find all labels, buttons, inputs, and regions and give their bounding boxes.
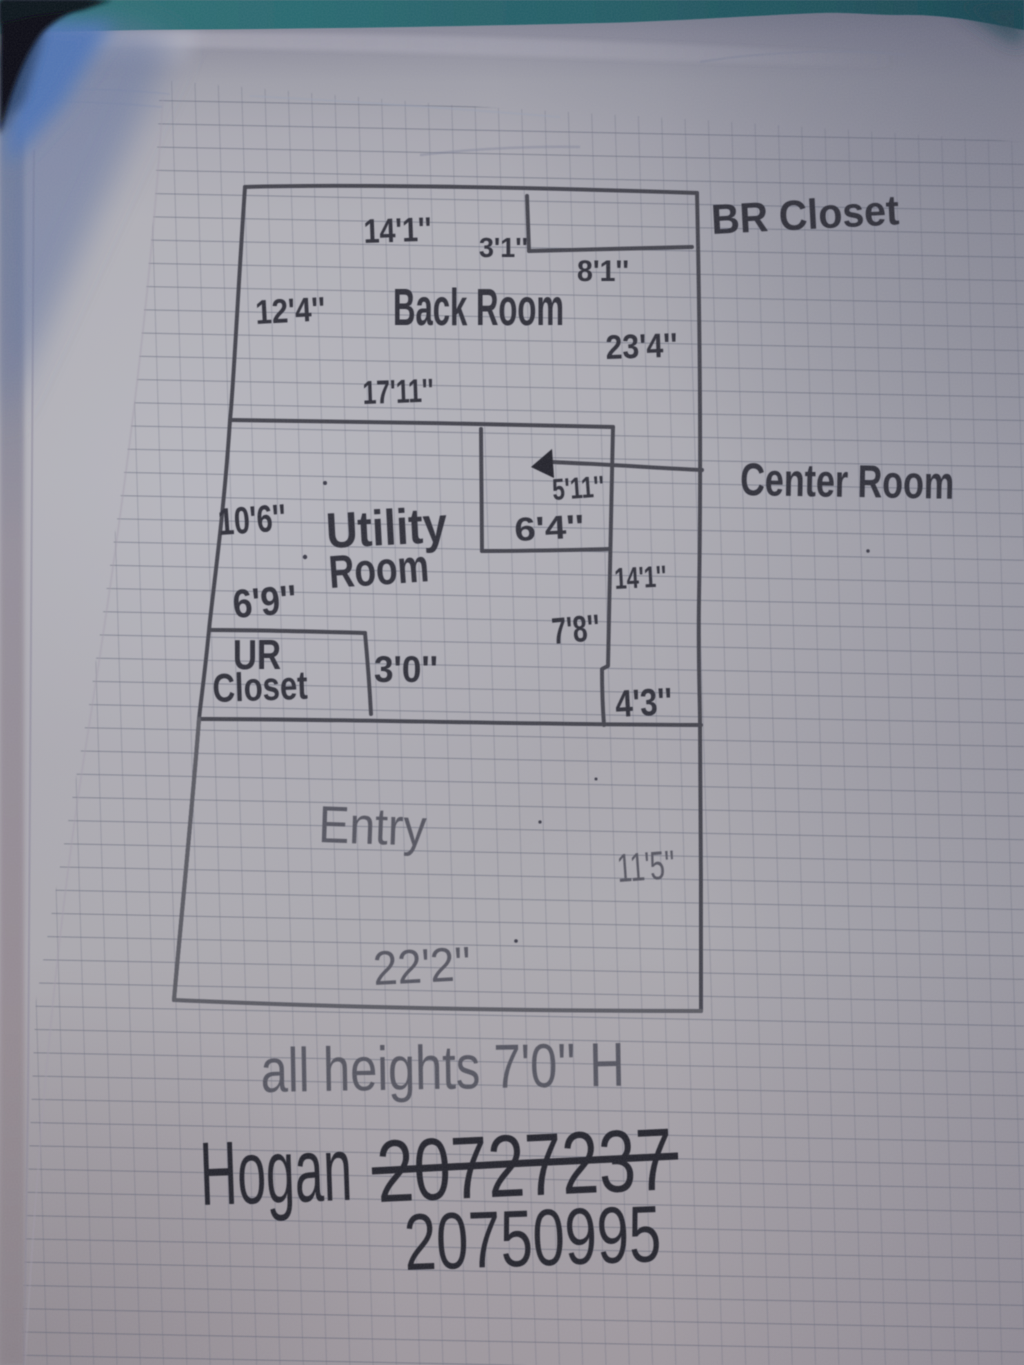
svg-text:14'1'': 14'1'' (614, 560, 668, 596)
svg-text:Hogan: Hogan (198, 1120, 353, 1225)
svg-text:3'0'': 3'0'' (374, 649, 438, 690)
svg-text:6'9'': 6'9'' (231, 578, 299, 627)
svg-text:4'3'': 4'3'' (614, 681, 673, 726)
svg-text:Center Room: Center Room (740, 453, 955, 509)
svg-text:23'4'': 23'4'' (605, 327, 678, 367)
svg-text:10'6'': 10'6'' (217, 497, 288, 544)
svg-text:14'1'': 14'1'' (363, 211, 432, 251)
svg-text:Back Room: Back Room (393, 279, 564, 337)
svg-text:12'4'': 12'4'' (254, 290, 326, 332)
svg-text:17'11'': 17'11'' (362, 372, 434, 411)
svg-text:3'1'': 3'1'' (479, 232, 528, 263)
svg-text:22'2'': 22'2'' (372, 938, 473, 996)
svg-text:5'11'': 5'11'' (551, 470, 605, 507)
svg-text:7'8'': 7'8'' (550, 607, 601, 652)
svg-text:all heights 7'0'' H: all heights 7'0'' H (260, 1031, 625, 1106)
svg-text:BR Closet: BR Closet (710, 186, 900, 243)
svg-text:8'1'': 8'1'' (577, 255, 629, 288)
svg-text:6'4'': 6'4'' (513, 507, 585, 548)
svg-text:Room: Room (327, 539, 430, 598)
svg-text:11'5'': 11'5'' (616, 843, 677, 891)
svg-text:Entry: Entry (318, 796, 428, 858)
svg-text:20750995: 20750995 (403, 1189, 663, 1287)
svg-text:Closet: Closet (212, 664, 308, 711)
